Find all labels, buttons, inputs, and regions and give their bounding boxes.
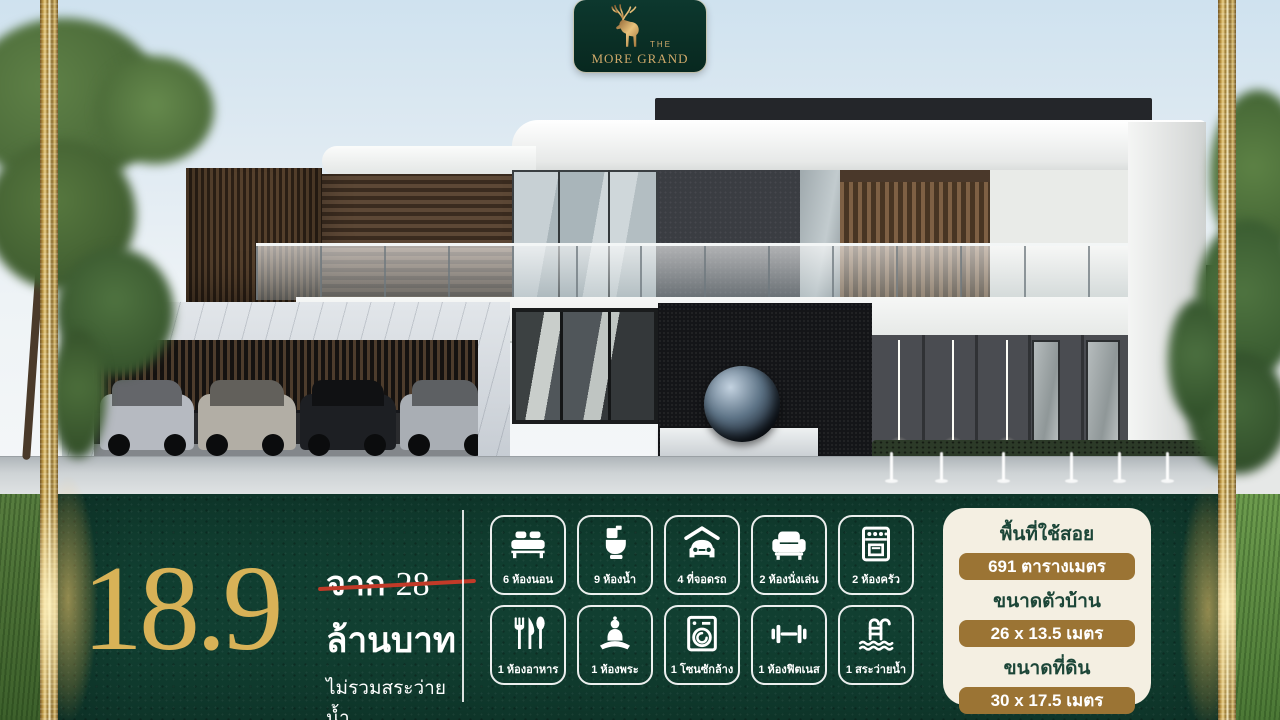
wall-light bbox=[952, 340, 954, 452]
car bbox=[400, 394, 478, 450]
toilet-icon bbox=[595, 524, 635, 564]
car bbox=[100, 394, 194, 450]
meditation-icon bbox=[595, 614, 635, 654]
details-panel: 18.9 จาก28 ล้านบาท ไม่รวมสระว่ายน้ำ 6 ห้… bbox=[58, 494, 1218, 720]
price-note: ไม่รวมสระว่ายน้ำ bbox=[326, 673, 462, 720]
feature-label: 1 โซนซักล้าง bbox=[671, 660, 733, 678]
cutlery-icon bbox=[508, 614, 548, 654]
feature-card: 4 ที่จอดรถ bbox=[664, 515, 740, 595]
glass-balustrade bbox=[256, 243, 1130, 300]
price-amount: 18.9 bbox=[82, 548, 280, 670]
entrance-door bbox=[512, 308, 658, 424]
entrance-steps bbox=[504, 424, 664, 460]
feature-card: 2 ห้องครัว bbox=[838, 515, 914, 595]
house-fascia-left bbox=[322, 146, 536, 176]
brand-logo: THE MORE GRAND bbox=[574, 0, 706, 72]
price-unit: ล้านบาท bbox=[326, 613, 462, 668]
original-price-strikethrough: จาก28 bbox=[326, 556, 462, 610]
info-value-pill: 691 ตารางเมตร bbox=[959, 553, 1135, 580]
sphere-fountain bbox=[704, 366, 780, 442]
feature-card: 1 ห้องพระ bbox=[577, 605, 653, 685]
wall-light bbox=[898, 340, 900, 452]
feature-label: 1 ห้องอาหาร bbox=[498, 660, 559, 678]
bed-icon bbox=[508, 524, 548, 564]
info-label: พื้นที่ใช้สอย bbox=[1000, 519, 1094, 549]
feature-label: 9 ห้องน้ำ bbox=[594, 570, 636, 588]
car bbox=[300, 394, 396, 450]
fountain-jet bbox=[890, 452, 893, 480]
info-value-pill: 26 x 13.5 เมตร bbox=[959, 620, 1135, 647]
gold-frame-left bbox=[40, 0, 58, 720]
stove-icon bbox=[856, 524, 896, 564]
ground-window bbox=[1032, 340, 1060, 456]
pool-icon bbox=[856, 614, 896, 654]
fountain-jet bbox=[1070, 452, 1073, 480]
info-label: ขนาดที่ดิน bbox=[1004, 653, 1091, 683]
fountain-jet bbox=[1118, 452, 1121, 480]
feature-label: 2 ห้องนั่งเล่น bbox=[759, 570, 818, 588]
grass bbox=[0, 494, 40, 720]
feature-label: 2 ห้องครัว bbox=[852, 570, 900, 588]
logo-name: MORE GRAND bbox=[574, 51, 706, 67]
fountain-jet bbox=[1166, 452, 1169, 480]
tree-foliage bbox=[96, 56, 214, 164]
feature-card: 6 ห้องนอน bbox=[490, 515, 566, 595]
bush bbox=[50, 330, 106, 458]
feature-label: 1 สระว่ายน้ำ bbox=[846, 660, 906, 678]
info-card: พื้นที่ใช้สอย 691 ตารางเมตร ขนาดตัวบ้าน … bbox=[943, 508, 1151, 705]
feature-label: 6 ห้องนอน bbox=[503, 570, 553, 588]
feature-card: 2 ห้องนั่งเล่น bbox=[751, 515, 827, 595]
car-garage-icon bbox=[682, 524, 722, 564]
feature-card: 1 ห้องอาหาร bbox=[490, 605, 566, 685]
house-photo bbox=[0, 0, 1280, 497]
info-value-pill: 30 x 17.5 เมตร bbox=[959, 687, 1135, 714]
driveway bbox=[0, 456, 1280, 497]
armchair-icon bbox=[769, 524, 809, 564]
car bbox=[198, 394, 296, 450]
feature-card: 1 ห้องฟิตเนส bbox=[751, 605, 827, 685]
logo-the: THE bbox=[650, 40, 672, 49]
dumbbell-icon bbox=[769, 614, 809, 654]
poster: 18.9 จาก28 ล้านบาท ไม่รวมสระว่ายน้ำ 6 ห้… bbox=[0, 0, 1280, 720]
feature-label: 1 ห้องฟิตเนส bbox=[758, 660, 819, 678]
tree-foliage bbox=[1168, 300, 1224, 420]
divider bbox=[462, 510, 464, 702]
feature-label: 4 ที่จอดรถ bbox=[677, 570, 726, 588]
original-price: 28 bbox=[396, 566, 430, 603]
washer-icon bbox=[682, 614, 722, 654]
feature-card: 1 โซนซักล้าง bbox=[664, 605, 740, 685]
feature-card: 1 สระว่ายน้ำ bbox=[838, 605, 914, 685]
fountain-jet bbox=[1002, 452, 1005, 480]
feature-label: 1 ห้องพระ bbox=[591, 660, 638, 678]
gold-frame-right bbox=[1218, 0, 1236, 720]
wall-light bbox=[1006, 340, 1008, 452]
price-from-label: จาก bbox=[326, 565, 386, 603]
house-fascia bbox=[512, 120, 1206, 172]
fountain-jet bbox=[940, 452, 943, 480]
ground-window bbox=[1086, 340, 1120, 456]
info-label: ขนาดตัวบ้าน bbox=[993, 586, 1101, 616]
feature-card: 9 ห้องน้ำ bbox=[577, 515, 653, 595]
feature-grid: 6 ห้องนอน 9 ห้องน้ำ 4 ที่จอดรถ 2 ห้องนั่… bbox=[490, 515, 914, 685]
deer-icon bbox=[604, 3, 648, 51]
